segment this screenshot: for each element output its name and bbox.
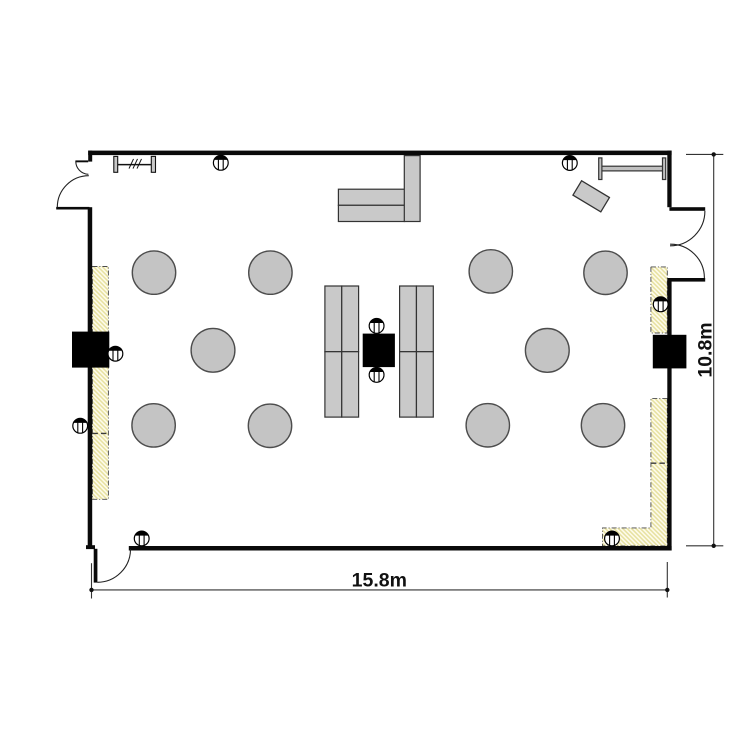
svg-text:10.8m: 10.8m <box>695 322 717 377</box>
svg-text:15.8m: 15.8m <box>352 570 407 592</box>
